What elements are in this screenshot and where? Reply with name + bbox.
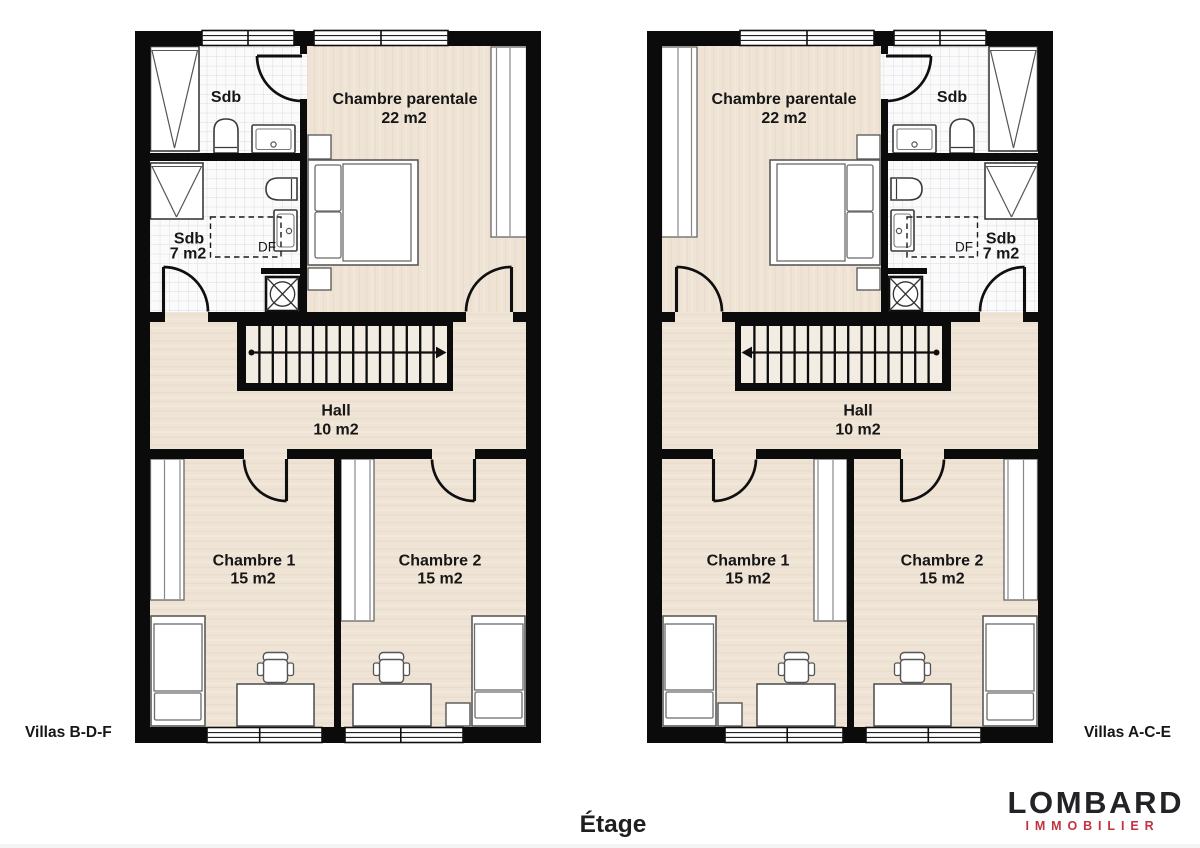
svg-text:15 m2: 15 m2 [919,571,964,588]
svg-text:10 m2: 10 m2 [313,422,358,439]
svg-text:Chambre parentale: Chambre parentale [333,91,478,108]
svg-text:DF: DF [955,240,973,255]
svg-text:10 m2: 10 m2 [835,422,880,439]
svg-text:15 m2: 15 m2 [230,571,275,588]
svg-text:7 m2: 7 m2 [170,246,207,263]
svg-text:15 m2: 15 m2 [725,571,770,588]
svg-text:IMMOBILIER: IMMOBILIER [1026,819,1160,833]
svg-text:Villas A-C-E: Villas A-C-E [1084,724,1171,741]
svg-text:Étage: Étage [580,810,647,838]
svg-text:22 m2: 22 m2 [381,110,426,127]
svg-text:Sdb: Sdb [937,89,967,106]
svg-text:LOMBARD: LOMBARD [1007,785,1184,820]
svg-text:Villas B-D-F: Villas B-D-F [25,724,112,741]
svg-text:22 m2: 22 m2 [761,110,806,127]
svg-text:Chambre 2: Chambre 2 [901,553,984,570]
svg-text:Chambre 2: Chambre 2 [399,553,482,570]
svg-text:Hall: Hall [843,403,872,420]
svg-text:15 m2: 15 m2 [417,571,462,588]
svg-text:Chambre 1: Chambre 1 [213,553,296,570]
svg-text:Hall: Hall [321,403,350,420]
svg-text:Sdb: Sdb [211,89,241,106]
svg-text:Chambre 1: Chambre 1 [707,553,790,570]
svg-text:DF: DF [258,240,276,255]
svg-text:7 m2: 7 m2 [983,246,1020,263]
svg-text:Chambre parentale: Chambre parentale [712,91,857,108]
